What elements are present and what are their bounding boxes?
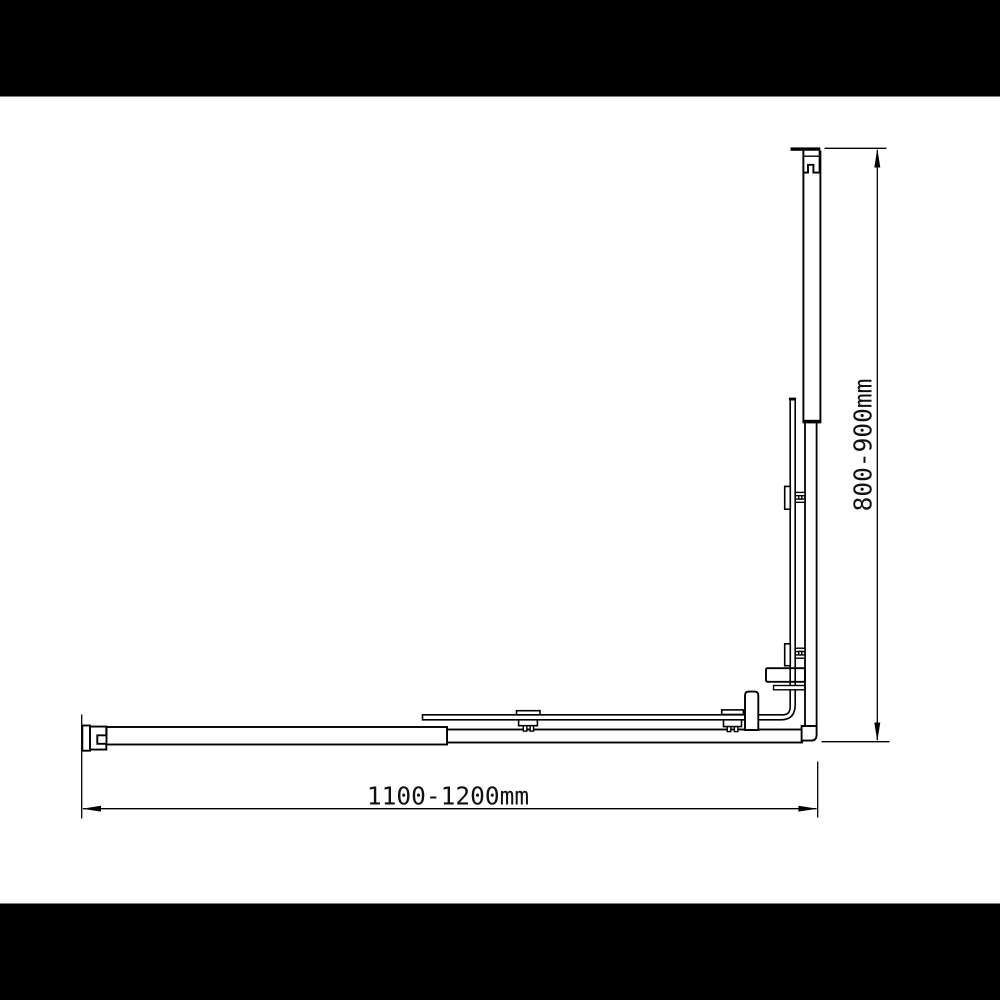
top-wall-bracket-flange [791, 147, 821, 150]
arrowhead-right-icon [798, 806, 817, 812]
right-post-upper-section [803, 152, 820, 423]
right-post-lower-section [805, 422, 817, 727]
arrowhead-down-icon [874, 723, 880, 742]
clip-leg [523, 726, 527, 731]
bottom-guide-clip-mid [517, 711, 541, 731]
arrowhead-left-icon [82, 806, 101, 812]
wall-bracket-left-clamp [90, 727, 106, 750]
clip-leg [530, 726, 534, 731]
clip-body [519, 720, 538, 726]
clip-cap [517, 711, 541, 715]
right-post-cap [803, 420, 821, 424]
top-wall-bracket-clamp [803, 151, 819, 173]
width-dimension-label: 1100-1200mm [367, 782, 529, 811]
technical-drawing-canvas: 800-900mm 1100-1200mm [0, 0, 1000, 1000]
sliding-door-panel [423, 399, 796, 720]
clip-leg [734, 727, 738, 732]
bottom-guide-clip-corner [722, 710, 744, 732]
clip-cap [722, 710, 744, 715]
clip-bridge [799, 652, 802, 655]
height-dimension-label: 800-900mm [849, 379, 878, 512]
corner-foot-block [802, 726, 817, 741]
clip-plate [785, 486, 791, 509]
bottom-rail-left-section [107, 727, 448, 745]
bottom-rail-right-section [447, 730, 802, 743]
roller-block [745, 692, 758, 730]
shower-screen-frame [82, 147, 821, 818]
drawing-page: 800-900mm 1100-1200mm [0, 0, 1000, 1000]
arrowhead-up-icon [874, 149, 880, 168]
letterbox-bottom [0, 904, 1000, 1000]
clip-body [724, 720, 742, 727]
door-panel-top-cap [789, 398, 796, 401]
clip-bridge [799, 496, 802, 499]
wall-bracket-left-plate [82, 726, 90, 751]
corner-handle-bracket [766, 668, 805, 682]
corner-handle-sub-bar [774, 686, 806, 690]
clip-plate [785, 644, 791, 666]
clip-leg [727, 727, 731, 732]
letterbox-top [0, 0, 1000, 97]
